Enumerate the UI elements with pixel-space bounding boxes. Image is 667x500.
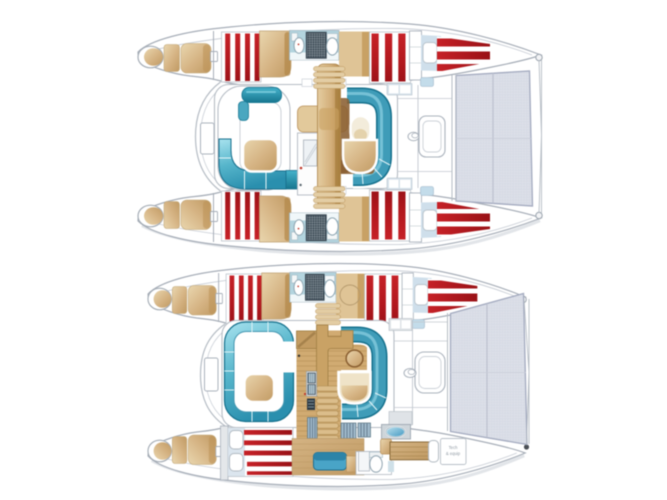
svg-text:& equip: & equip [446, 451, 461, 456]
svg-text:Tech: Tech [449, 445, 459, 450]
